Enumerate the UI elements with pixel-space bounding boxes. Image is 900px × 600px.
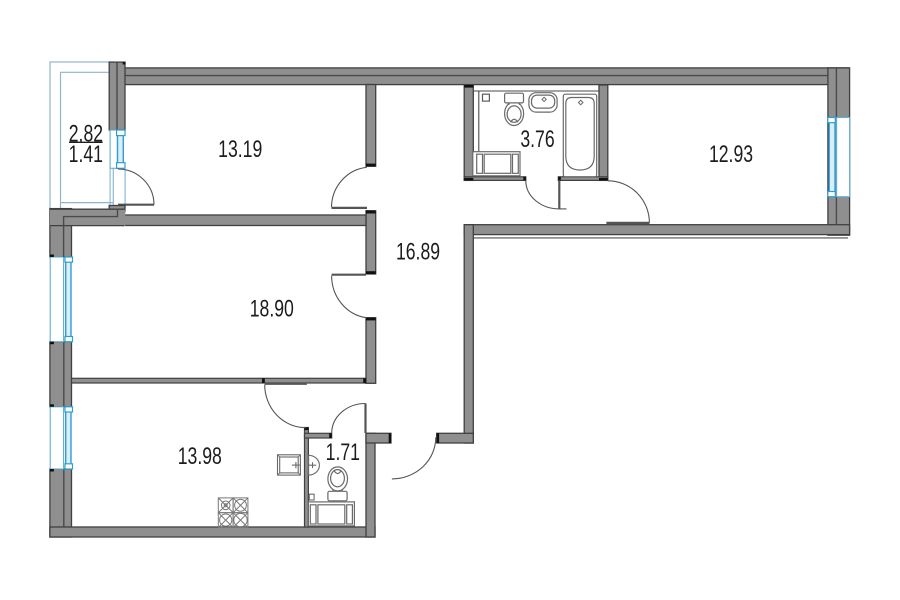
- svg-text:18.90: 18.90: [250, 295, 294, 323]
- svg-text:1.71: 1.71: [326, 438, 360, 466]
- svg-text:12.93: 12.93: [709, 140, 753, 168]
- svg-text:3.76: 3.76: [520, 125, 554, 153]
- svg-text:13.19: 13.19: [218, 135, 262, 163]
- svg-text:13.98: 13.98: [178, 442, 222, 470]
- svg-text:16.89: 16.89: [396, 238, 440, 266]
- svg-text:1.41: 1.41: [69, 140, 103, 168]
